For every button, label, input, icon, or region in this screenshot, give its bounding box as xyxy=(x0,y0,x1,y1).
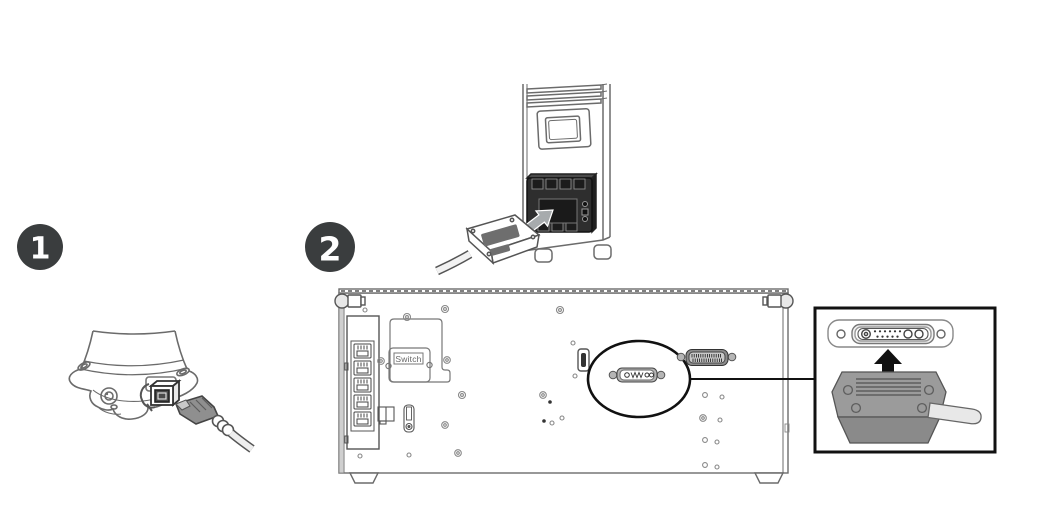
step2-number: 2 xyxy=(319,230,342,269)
controller-tower-figure xyxy=(437,84,611,271)
step1-number: 1 xyxy=(30,232,51,267)
controller-back-panel: Switch xyxy=(335,289,793,483)
tower-handle xyxy=(537,109,591,150)
diagram-artwork: 1 2 xyxy=(0,0,1041,507)
instruction-diagram: 1 2 xyxy=(0,0,1041,507)
left-clamp xyxy=(335,294,365,308)
switch-label: Switch xyxy=(395,354,421,364)
robot-base-connector-socket xyxy=(141,377,179,411)
circled-connector xyxy=(609,368,665,382)
robot-cable-plug xyxy=(176,396,252,449)
tower-vent-slats xyxy=(527,84,607,107)
robot-base-figure xyxy=(69,331,252,449)
right-clamp xyxy=(763,294,793,308)
callout-receptacle xyxy=(828,320,953,347)
step2-badge: 2 xyxy=(305,222,355,272)
step1-badge: 1 xyxy=(17,224,63,270)
callout-box xyxy=(815,308,995,452)
tower-cable-plug xyxy=(437,215,539,271)
